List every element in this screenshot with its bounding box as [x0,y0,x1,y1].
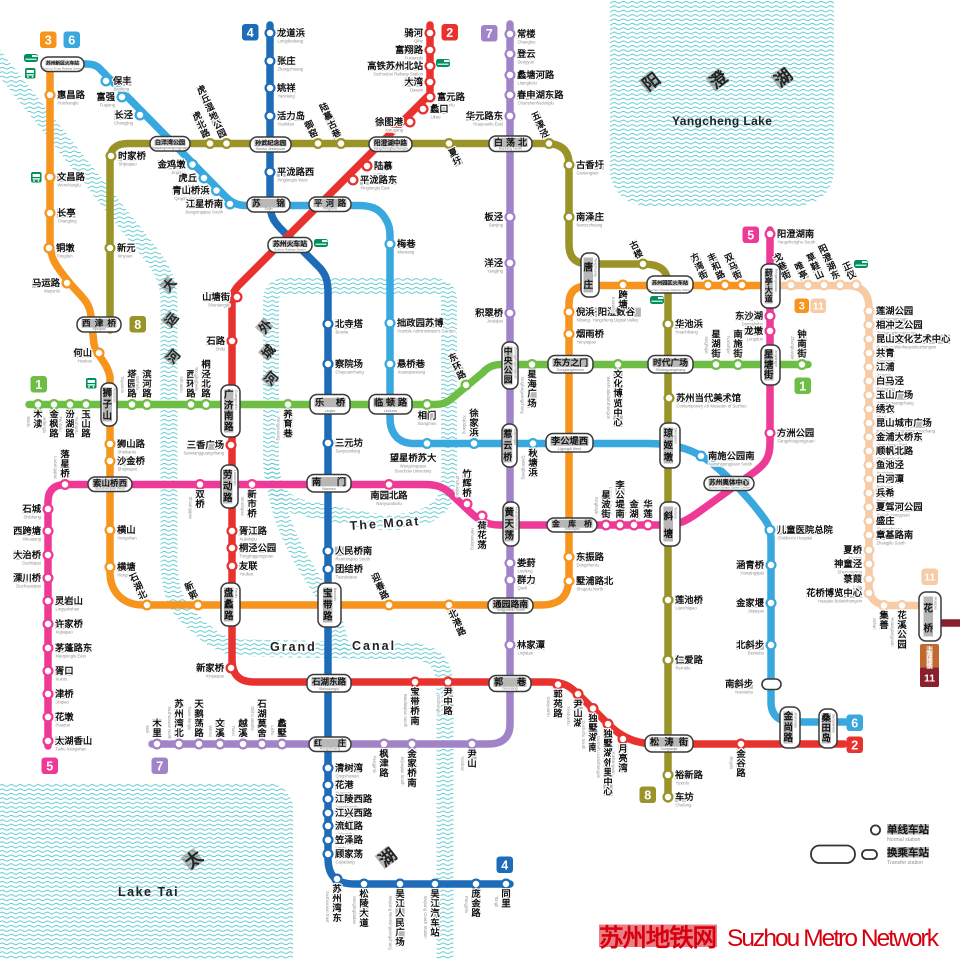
svg-text:白马泾: 白马泾 [876,375,905,386]
svg-text:惹云桥: 惹云桥 [502,428,513,462]
svg-text:Jinqiao: Jinqiao [56,700,70,705]
svg-text:Banjing: Banjing [489,223,504,228]
svg-text:蠡口: 蠡口 [430,103,449,114]
svg-text:Nibang· Yangcheng Digital Vall: Nibang· Yangcheng Digital Valley [577,318,640,323]
svg-text:江陵西路: 江陵西路 [335,793,373,804]
svg-text:枫津路: 枫津路 [379,748,389,778]
svg-text:桐泾北路: 桐泾北路 [201,359,211,399]
svg-text:宝带桥南: 宝带桥南 [410,686,420,726]
svg-text:徐图港: 徐图港 [374,116,404,127]
svg-text:兵希: 兵希 [876,487,895,498]
svg-text:Hanqingqiao: Hanqingqiao [740,571,764,576]
svg-text:Qiutangbang: Qiutangbang [521,456,526,481]
svg-text:江浦: 江浦 [876,361,895,372]
svg-text:Wujiang Renminguangchang: Wujiang Renminguangchang [388,896,393,950]
svg-text:相门: 相门 [418,410,437,421]
svg-text:Xingtangjie: Xingtangjie [774,350,778,367]
svg-text:Leqiao: Leqiao [325,409,336,413]
svg-text:临顿路: 临顿路 [374,397,408,408]
svg-text:Changting: Changting [58,219,78,224]
svg-text:富翔路: 富翔路 [395,44,424,55]
svg-text:石湖莫舍: 石湖莫舍 [256,699,267,738]
svg-text:大治桥: 大治桥 [13,549,42,560]
svg-text:陆慕: 陆慕 [374,160,393,171]
svg-text:Huayuanlu East: Huayuanlu East [473,122,503,127]
svg-text:高铁苏州北站: 高铁苏州北站 [367,60,423,71]
svg-text:Fenhulu: Fenhulu [58,417,63,433]
svg-text:Zhongnanjie: Zhongnanjie [790,336,795,360]
svg-text:昆山文化艺术中心: 昆山文化艺术中心 [876,333,951,344]
svg-text:金谷路: 金谷路 [735,748,746,778]
svg-text:太湖香山: 太湖香山 [54,735,92,746]
svg-text:团结桥: 团结桥 [335,563,364,574]
svg-text:板泾: 板泾 [484,211,503,222]
svg-text:5: 5 [46,759,53,773]
svg-text:Nanyuanbeilu: Nanyuanbeilu [376,501,402,506]
svg-text:南园北路: 南园北路 [370,490,408,501]
svg-text:Songlingdadao: Songlingdadao [352,896,357,925]
svg-text:Tongjingbeilu: Tongjingbeilu [194,367,199,392]
svg-text:桑田岛: 桑田岛 [821,713,832,743]
svg-text:Qiongjidun: Qiongjidun [674,428,678,444]
svg-text:Meixiang: Meixiang [398,250,415,255]
svg-text:笠泽路: 笠泽路 [334,834,364,845]
svg-text:绣衣: 绣衣 [875,403,895,414]
svg-text:苏州地铁网: 苏州地铁网 [599,924,717,952]
svg-text:Kuatang: Kuatang [611,297,616,313]
svg-text:活力岛: 活力岛 [277,110,305,121]
svg-text:Heshan: Heshan [78,359,93,364]
svg-text:津桥: 津桥 [55,688,74,699]
svg-text:Baodailu: Baodailu [333,588,337,601]
svg-text:Lianchiqiao: Lianchiqiao [676,606,698,611]
svg-text:Yushanlu: Yushanlu [74,417,79,435]
svg-text:Yangyuxiang: Yangyuxiang [276,417,281,442]
svg-text:金尚路: 金尚路 [782,711,793,744]
svg-text:许家桥: 许家桥 [55,618,84,629]
svg-text:Yinshan: Yinshan [460,756,465,772]
svg-text:烟雨桥: 烟雨桥 [576,328,605,339]
svg-text:11: 11 [924,572,935,584]
svg-text:Likou: Likou [431,115,442,120]
svg-text:平泷路西: 平泷路西 [277,166,314,177]
svg-text:Dongfangzhimen: Dongfangzhimen [557,368,584,372]
svg-text:狮子山: 狮子山 [101,387,112,422]
svg-text:Xinjiaqiao: Xinjiaqiao [206,674,225,679]
svg-text:Maopenglu East: Maopenglu East [56,654,87,659]
svg-text:三香广场: 三香广场 [187,439,224,450]
svg-text:葑亭大道: 葑亭大道 [765,267,774,303]
svg-text:玉山路: 玉山路 [81,410,91,439]
svg-text:Tiane danglu: Tiane danglu [187,706,192,731]
svg-text:溧川桥: 溧川桥 [13,572,42,583]
svg-text:Guoxiang: Guoxiang [502,686,517,690]
svg-text:富强: 富强 [96,91,115,102]
svg-text:Zhangjilu South: Zhangjilu South [877,541,907,546]
svg-text:Linjiatan: Linjiatan [518,651,534,656]
svg-text:鱼池泾: 鱼池泾 [876,459,905,470]
svg-text:夏桥: 夏桥 [842,544,862,555]
svg-text:Songtaojie: Songtaojie [661,747,678,751]
svg-text:Longdaobang: Longdaobang [278,39,304,44]
svg-text:望星桥苏大: 望星桥苏大 [390,452,437,463]
svg-text:Jiangxingqiao South: Jiangxingqiao South [185,210,223,215]
svg-text:换乘车站: 换乘车站 [887,846,929,859]
svg-text:三元坊: 三元坊 [335,437,364,448]
svg-text:11: 11 [813,301,824,313]
svg-text:Qihe: Qihe [414,39,424,44]
svg-text:盛庄: 盛庄 [876,515,895,526]
svg-text:Mayunlu: Mayunlu [44,289,60,294]
svg-text:4: 4 [247,26,254,40]
svg-text:新家桥: 新家桥 [196,662,225,673]
svg-text:Suzhou Yuanqu Railway Station: Suzhou Yuanqu Railway Station [649,288,692,292]
svg-text:Nanmen: Nanmen [322,487,336,491]
svg-text:Chefang: Chefang [676,803,693,808]
svg-text:玉山广场: 玉山广场 [876,389,913,400]
svg-text:青山桥浜: 青山桥浜 [172,185,210,196]
svg-text:惠昌路: 惠昌路 [57,89,86,100]
svg-text:仁爱路: 仁爱路 [675,654,704,665]
svg-text:顺帆北路: 顺帆北路 [876,445,914,456]
svg-text:2: 2 [851,738,858,752]
svg-text:3: 3 [45,33,52,47]
svg-text:金枫路: 金枫路 [48,409,59,439]
svg-text:盘蠡路: 盘蠡路 [224,587,234,622]
svg-text:蠡塘河路: 蠡塘河路 [517,69,555,80]
svg-text:Panlilu: Panlilu [234,588,238,598]
svg-text:Chunshenhudonglu: Chunshenhudonglu [518,101,555,106]
svg-text:胥口: 胥口 [55,665,74,676]
svg-text:Fengjinlu: Fengjinlu [372,756,377,774]
svg-text:Yangchenghu South: Yangchenghu South [778,240,816,245]
svg-text:Muli: Muli [145,725,150,733]
svg-text:Reyunqiao: Reyunqiao [513,429,517,445]
svg-text:Luoxingqiao: Luoxingqiao [53,456,58,479]
svg-text:Zhangzhuang: Zhangzhuang [278,67,304,72]
svg-text:中央公园: 中央公园 [504,345,513,385]
svg-text:花溪公园: 花溪公园 [897,610,907,650]
svg-text:苏州湾北: 苏州湾北 [173,698,184,738]
svg-text:松涛街: 松涛街 [650,736,689,747]
svg-text:Transfer station: Transfer station [887,860,923,866]
svg-text:Shupulu North: Shupulu North [577,587,604,592]
svg-text:Lake Tai: Lake Tai [118,885,179,899]
svg-text:华池浜: 华池浜 [675,318,704,329]
svg-text:莲池桥: 莲池桥 [675,594,704,605]
svg-text:Shajinqiao: Shajinqiao [118,467,138,472]
svg-text:Canal: Canal [352,639,396,653]
svg-text:Nanxiebu: Nanxiebu [735,690,753,695]
svg-text:Wenchanglu: Wenchanglu [58,183,82,188]
svg-text:Shicheng: Shicheng [24,515,42,520]
svg-text:林家潭: 林家潭 [517,639,546,650]
svg-text:何山: 何山 [73,347,92,358]
svg-text:Tuanjieqiao: Tuanjieqiao [336,575,358,580]
svg-text:苏州湾东: 苏州湾东 [331,883,342,923]
svg-text:石城: 石城 [21,503,41,514]
svg-text:Tayuanlu: Tayuanlu [120,376,125,393]
svg-text:Dongzhenlu: Dongzhenlu [577,563,600,568]
svg-text:桐泾公园: 桐泾公园 [239,542,276,553]
svg-text:双桥: 双桥 [194,490,205,510]
svg-text:春申湖东路: 春申湖东路 [516,89,564,100]
svg-text:Baodaiqiao South: Baodaiqiao South [403,694,408,728]
svg-text:Huangtiandang: Huangtiandang [515,507,519,530]
svg-text:Wujiang Coach Station: Wujiang Coach Station [423,896,428,939]
svg-text:华元路东: 华元路东 [466,110,503,121]
svg-text:车坊: 车坊 [675,791,694,802]
svg-text:金湖: 金湖 [628,498,639,519]
svg-text:Beisita: Beisita [336,330,349,335]
svg-text:Qingshuwan: Qingshuwan [336,774,360,779]
svg-text:花港: 花港 [335,779,354,790]
svg-text:Hengshan: Hengshan [118,536,138,541]
svg-text:Pinglonglu West: Pinglonglu West [278,178,309,183]
svg-text:滨河路: 滨河路 [142,368,152,398]
svg-text:大湾: 大湾 [404,76,423,87]
svg-text:徐家浜: 徐家浜 [468,407,479,437]
svg-text:Huolidao: Huolidao [278,122,295,127]
svg-text:Xujiabang: Xujiabang [462,415,467,434]
svg-text:裕新路: 裕新路 [674,769,704,780]
svg-text:江星桥南: 江星桥南 [186,198,223,209]
svg-text:Xinghujie: Xinghujie [704,336,709,354]
svg-text:7: 7 [156,759,163,773]
svg-text:古香圩: 古香圩 [576,159,605,170]
svg-text:木渎: 木渎 [32,409,43,430]
svg-text:Sanxiangguangchang: Sanxiangguangchang [183,451,224,456]
svg-text:石湖东路: 石湖东路 [311,677,346,687]
svg-text:胥江路: 胥江路 [239,525,268,536]
svg-text:尹中路: 尹中路 [443,687,453,716]
svg-text:3: 3 [799,301,805,313]
svg-text:Humble Administrator's Garden: Humble Administrator's Garden [398,329,457,334]
svg-text:东方之门: 东方之门 [553,357,588,368]
svg-text:Yueliangwan: Yueliangwan [611,751,616,775]
svg-text:长泾: 长泾 [114,109,133,120]
svg-text:Tangzhuang: Tangzhuang [594,258,598,277]
svg-text:Ren'ailu: Ren'ailu [676,666,692,671]
svg-text:Huadun: Huadun [56,723,71,728]
svg-text:Beixiebu: Beixiebu [748,651,765,656]
svg-text:Jingulu: Jingulu [729,756,734,770]
svg-text:Fuxianglu: Fuxianglu [405,56,424,61]
svg-text:金鸡墩: 金鸡墩 [157,159,187,170]
svg-text:6: 6 [851,716,858,730]
svg-text:Mudu: Mudu [26,417,31,428]
svg-text:Yaoxiang: Yaoxiang [278,94,296,99]
svg-text:Jinshanglu: Jinshanglu [794,712,798,728]
svg-text:Yangjing: Yangjing [487,269,504,274]
svg-text:Fangzhougongyuan: Fangzhougongyuan [778,439,816,444]
svg-text:李公堤南: 李公堤南 [614,479,625,519]
svg-text:Wenhuabolanzhongxin: Wenhuabolanzhongxin [606,377,611,420]
svg-text:蠡墅: 蠡墅 [277,717,287,738]
svg-text:Dawan: Dawan [410,88,424,93]
svg-text:白河潭: 白河潭 [876,473,905,484]
svg-text:Tongdun: Tongdun [57,254,74,259]
svg-text:Children's Hospital: Children's Hospital [778,536,813,541]
svg-text:Dengyun: Dengyun [518,60,535,65]
svg-text:吴江汽车站: 吴江汽车站 [430,889,440,937]
svg-text:长亭: 长亭 [57,207,76,218]
svg-text:5: 5 [747,228,754,242]
svg-text:拙政园苏博: 拙政园苏博 [397,317,444,328]
svg-text:Guangjinanlu: Guangjinanlu [234,390,238,410]
svg-text:Contemporary Art Museum of Suz: Contemporary Art Museum of Suzhou [677,404,748,409]
svg-text:4: 4 [501,858,508,872]
svg-text:Yinzhonglu: Yinzhonglu [436,694,441,715]
svg-text:Hehuadang: Hehuadang [470,528,475,550]
svg-text:横山: 横山 [117,524,136,535]
svg-text:Fengtingdadao: Fengtingdadao [774,269,778,292]
svg-text:宝带路: 宝带路 [323,587,333,622]
svg-text:金家堰: 金家堰 [735,597,765,608]
svg-text:Nanshigongyuan South: Nanshigongyuan South [709,462,753,467]
svg-text:涵青桥: 涵青桥 [736,559,765,570]
svg-text:上海地铁: 上海地铁 [926,646,932,671]
svg-text:落星桥: 落星桥 [60,448,70,478]
svg-text:Guxiangwei: Guxiangwei [577,171,599,176]
svg-text:相冲之公园: 相冲之公园 [876,319,923,330]
svg-text:星海广场: 星海广场 [527,370,537,409]
svg-text:尹山: 尹山 [467,749,477,769]
svg-text:北斜步: 北斜步 [736,639,764,650]
svg-text:平泷路东: 平泷路东 [360,174,397,185]
svg-text:秋塘浜: 秋塘浜 [528,448,538,478]
svg-text:Baofeng: Baofeng [114,87,130,92]
svg-text:龙墩: 龙墩 [743,325,763,336]
svg-text:狮山路: 狮山路 [116,438,146,449]
svg-text:莲湖公园: 莲湖公园 [876,305,913,316]
svg-text:Xiangmen: Xiangmen [418,421,438,426]
svg-text:南施街: 南施街 [732,328,743,358]
svg-text:Grand: Grand [270,640,317,654]
svg-text:2: 2 [446,26,453,40]
svg-text:东沙湖: 东沙湖 [735,310,763,321]
svg-text:Shishanlu: Shishanlu [118,450,137,455]
svg-text:Suzhouwan East: Suzhouwan East [325,891,330,923]
svg-text:Pinghelu: Pinghelu [323,206,337,210]
svg-text:月亮湾: 月亮湾 [617,744,628,773]
svg-text:Xutugang: Xutugang [385,128,404,133]
svg-text:章基路南: 章基路南 [876,529,913,540]
svg-text:Nanzezhuang: Nanzezhuang [577,223,604,228]
svg-text:Laodonglu: Laodonglu [233,470,237,486]
svg-text:吴江人民广场: 吴江人民广场 [395,889,405,947]
svg-text:梅巷: 梅巷 [397,238,416,249]
svg-text:Tongli: Tongli [494,896,499,907]
svg-text:Pinglonglu East: Pinglonglu East [361,186,391,191]
svg-text:Ligongdi West: Ligongdi West [558,447,581,451]
svg-text:菉葭: 菉葭 [843,573,862,584]
svg-text:Gujiadang: Gujiadang [336,860,356,865]
svg-text:Lishu: Lishu [270,725,275,736]
svg-text:骑河: 骑河 [404,27,423,38]
svg-text:Xinyuan: Xinyuan [118,254,134,259]
svg-text:Dushuhu South: Dushuhu South [581,721,586,751]
svg-text:Xujianglu: Xujianglu [240,537,258,542]
svg-text:Lingyanshan: Lingyanshan [56,607,80,612]
svg-text:茅蓬路东: 茅蓬路东 [54,642,92,653]
svg-text:察院场: 察院场 [335,358,363,369]
svg-text:Shijiaqiao: Shijiaqiao [119,162,138,167]
svg-text:Shilu: Shilu [216,347,226,352]
svg-text:儿童医院总院: 儿童医院总院 [776,524,833,535]
svg-text:Sanyuanfang: Sanyuanfang [336,449,361,454]
svg-text:Duchuanqiao: Duchuanqiao [16,584,41,589]
svg-text:新市桥: 新市桥 [247,489,257,519]
svg-text:Huaxigongyuan: Huaxigongyuan [890,618,895,648]
svg-text:文化博览中心: 文化博览中心 [612,369,623,428]
svg-text:天鹅荡路: 天鹅荡路 [194,699,204,738]
svg-text:Changjing: Changjing [114,121,134,126]
svg-text:南泽庄: 南泽庄 [576,211,605,222]
svg-text:Xijinqiao: Xijinqiao [92,327,106,331]
svg-text:花墩: 花墩 [55,711,74,722]
svg-text:东振路: 东振路 [576,551,605,562]
svg-text:Normal station: Normal station [887,837,921,843]
svg-text:8: 8 [134,318,141,332]
svg-text:常楼: 常楼 [517,28,536,39]
svg-text:Guoyuanlu: Guoyuanlu [546,697,551,718]
svg-text:积翠桥: 积翠桥 [474,307,504,318]
svg-text:南斜步: 南斜步 [725,678,753,689]
svg-text:越溪: 越溪 [237,717,248,738]
svg-text:悬桥巷: 悬桥巷 [396,358,426,369]
svg-text:Wenxi: Wenxi [208,725,213,737]
svg-text:富元路: 富元路 [437,91,466,102]
svg-text:时家桥: 时家桥 [118,150,147,161]
svg-text:Shantangjie: Shantangjie [208,303,231,308]
svg-text:Jinjiaqiao South: Jinjiaqiao South [400,756,405,786]
svg-text:Shihu Moshe: Shihu Moshe [250,706,255,731]
svg-text:Yuexi: Yuexi [231,725,236,735]
svg-text:Renminqiao South: Renminqiao South [336,557,371,562]
svg-text:黄天荡: 黄天荡 [504,506,514,541]
svg-text:庞金路: 庞金路 [470,888,481,918]
svg-text:Dazhiqiao: Dazhiqiao [22,561,41,566]
svg-text:横塘: 横塘 [117,561,136,572]
svg-text:Shihudonglu: Shihudonglu [319,687,339,691]
svg-text:Youlian: Youlian [240,572,254,577]
svg-text:共青: 共青 [876,347,895,358]
svg-text:Qunli: Qunli [518,586,528,591]
svg-text:集善: 集善 [878,610,889,631]
svg-text:文溪: 文溪 [214,717,225,738]
svg-text:Xuanqiaoxiang: Xuanqiaoxiang [398,370,426,375]
svg-text:登云: 登云 [516,48,536,59]
svg-text:金家桥南: 金家桥南 [406,748,417,788]
svg-text:Longdun: Longdun [747,337,764,342]
svg-text:江兴西路: 江兴西路 [335,807,373,818]
svg-text:Jinfenglu: Jinfenglu [42,417,47,434]
svg-text:清树湾: 清树湾 [335,762,364,773]
svg-text:郭苑路: 郭苑路 [552,689,563,719]
svg-text:1: 1 [35,378,42,392]
svg-text:Sujin: Sujin [265,207,273,211]
svg-text:Huaqiao: Huaqiao [934,597,938,610]
svg-text:Baiyangwangongyuan: Baiyangwangongyuan [152,146,187,150]
svg-text:娄葑: 娄葑 [516,557,536,568]
svg-text:Hongzhuang: Hongzhuang [320,746,340,750]
svg-text:跨塘: 跨塘 [618,289,628,310]
svg-text:6: 6 [68,33,75,47]
svg-text:竹辉桥: 竹辉桥 [461,468,472,498]
svg-text:石路: 石路 [205,335,225,346]
svg-text:李公堤西: 李公堤西 [550,435,588,446]
